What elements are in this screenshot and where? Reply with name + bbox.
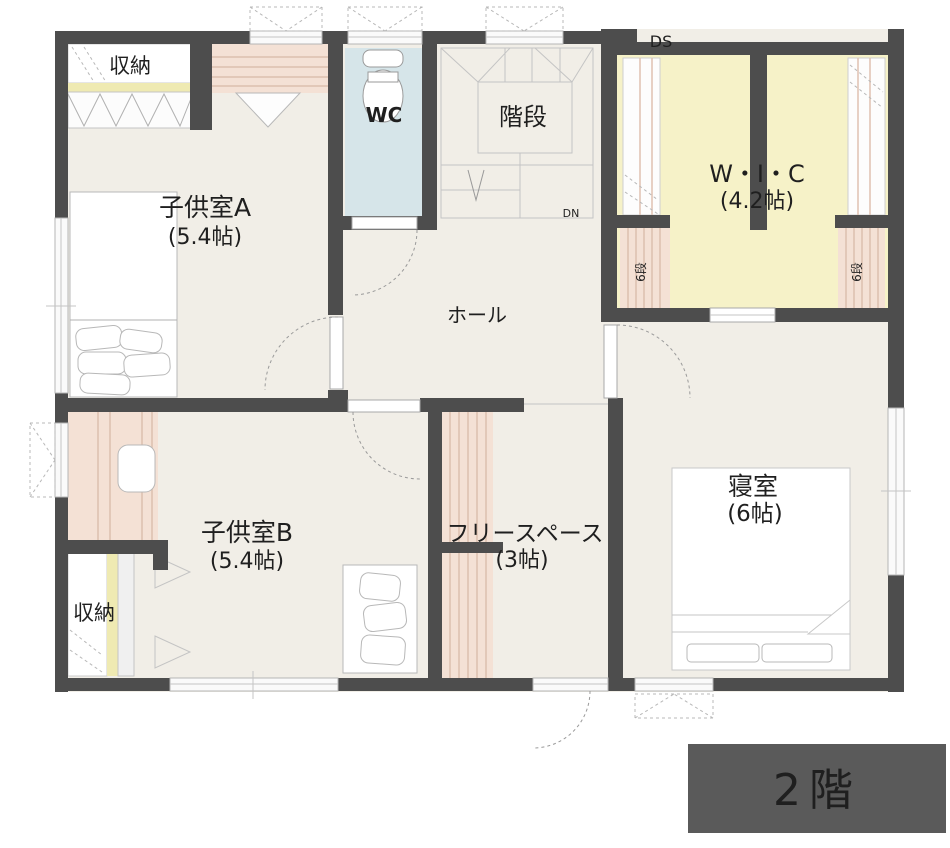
label-free-space-name: フリースペース	[446, 521, 603, 547]
desk-kodomo-b	[118, 445, 155, 492]
door-balcony	[533, 691, 590, 748]
wic-hanger-right	[848, 58, 885, 215]
label-shelf-right: 6段	[849, 262, 864, 282]
label-kaidan: 階段	[499, 103, 547, 131]
closet-kodomo-a	[212, 44, 328, 93]
label-wic-name: W・I・C	[709, 160, 805, 188]
label-kodomo-b-size: (5.4帖)	[210, 549, 284, 574]
label-storage-top: 収納	[109, 54, 151, 78]
label-wic-size: (4.2帖)	[720, 189, 794, 214]
floor-badge: 2階	[688, 744, 946, 833]
label-shelf-left: 6段	[633, 262, 648, 282]
wic-hanger-left	[623, 58, 660, 215]
label-ds: DS	[650, 32, 672, 51]
floor-plan: 収納 子供室A (5.4帖) WC 階段 DS DN W・I・C (4.2帖) …	[0, 0, 950, 848]
label-storage-bottom: 収納	[73, 601, 115, 625]
label-shinshitsu-name: 寝室	[728, 472, 778, 501]
label-shinshitsu-size: (6帖)	[727, 501, 783, 527]
label-dn: DN	[563, 207, 580, 220]
label-wc: WC	[366, 103, 403, 127]
door-wic-sliding	[710, 308, 775, 322]
floor-plan-page: 収納 子供室A (5.4帖) WC 階段 DS DN W・I・C (4.2帖) …	[0, 0, 950, 848]
label-kodomo-a-name: 子供室A	[159, 193, 251, 222]
label-hall: ホール	[447, 303, 507, 327]
label-kodomo-a-size: (5.4帖)	[168, 225, 242, 250]
label-free-space-size: (3帖)	[495, 548, 548, 573]
bed-kodomo-a	[70, 192, 177, 397]
label-kodomo-b-name: 子供室B	[201, 518, 293, 547]
floor-badge-label: 2階	[773, 765, 861, 816]
bed-kodomo-b	[343, 565, 417, 673]
